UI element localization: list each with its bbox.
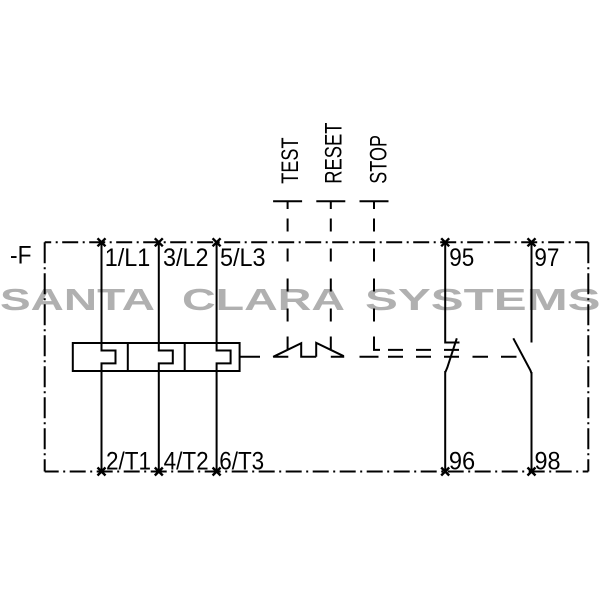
svg-text:1/L1: 1/L1 bbox=[105, 244, 151, 272]
svg-text:STOP: STOP bbox=[366, 135, 393, 184]
svg-text:4/T2: 4/T2 bbox=[164, 447, 209, 475]
svg-text:98: 98 bbox=[535, 447, 561, 475]
svg-text:3/L2: 3/L2 bbox=[163, 244, 209, 272]
svg-text:TEST: TEST bbox=[277, 137, 304, 183]
svg-text:97: 97 bbox=[534, 244, 559, 272]
svg-text:95: 95 bbox=[449, 244, 474, 272]
svg-text:CLARA: CLARA bbox=[182, 283, 345, 317]
svg-text:96: 96 bbox=[449, 447, 475, 475]
svg-text:-F: -F bbox=[10, 242, 32, 270]
svg-text:RESET: RESET bbox=[320, 122, 347, 183]
svg-text:5/L3: 5/L3 bbox=[220, 244, 266, 272]
svg-text:SYSTEMS: SYSTEMS bbox=[365, 283, 600, 317]
svg-text:6/T3: 6/T3 bbox=[219, 447, 264, 475]
svg-text:SANTA: SANTA bbox=[0, 283, 155, 317]
svg-text:2/T1: 2/T1 bbox=[106, 447, 151, 475]
